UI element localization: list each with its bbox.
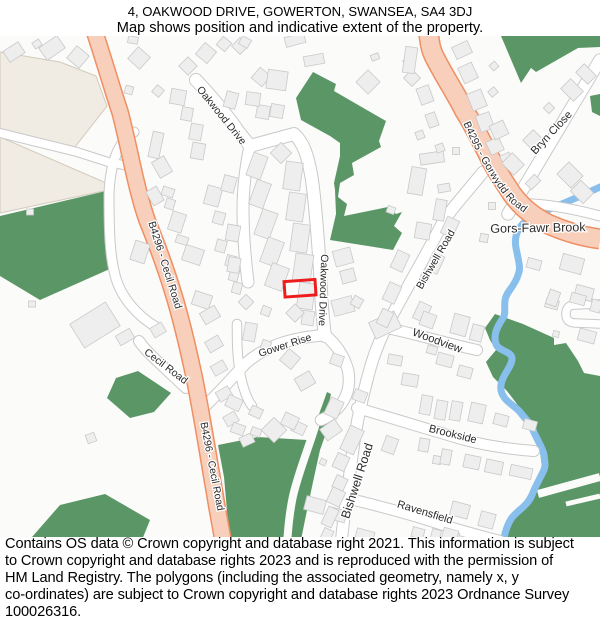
svg-text:Oakwood Drive: Oakwood Drive bbox=[316, 254, 331, 326]
svg-text:Gors-Fawr Brook: Gors-Fawr Brook bbox=[490, 220, 586, 236]
